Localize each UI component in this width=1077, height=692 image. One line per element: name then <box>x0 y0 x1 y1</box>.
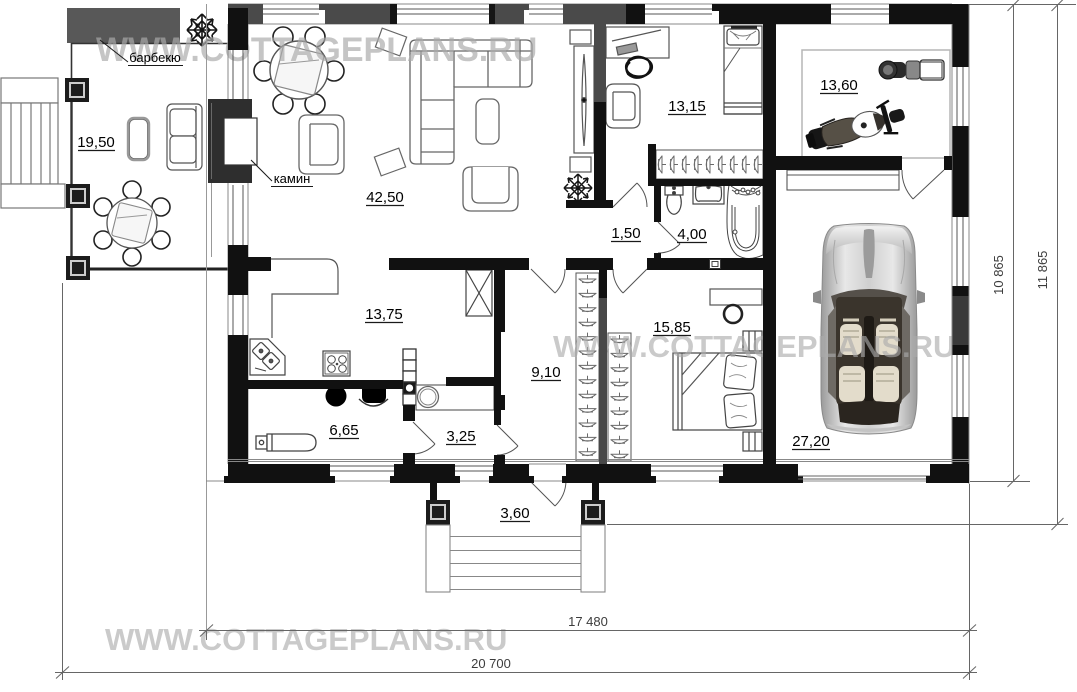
svg-text:WWW.COTTAGEPLANS.RU: WWW.COTTAGEPLANS.RU <box>553 329 955 364</box>
svg-text:20 700: 20 700 <box>471 656 511 671</box>
svg-text:13,75: 13,75 <box>365 306 403 323</box>
svg-text:4,00: 4,00 <box>677 226 706 243</box>
svg-text:3,25: 3,25 <box>446 428 475 445</box>
svg-text:WWW.COTTAGEPLANS.RU: WWW.COTTAGEPLANS.RU <box>105 622 507 657</box>
svg-text:13,15: 13,15 <box>668 98 706 115</box>
svg-text:17 480: 17 480 <box>568 614 608 629</box>
svg-text:9,10: 9,10 <box>531 364 560 381</box>
svg-text:15,85: 15,85 <box>653 319 691 336</box>
svg-text:камин: камин <box>274 171 311 186</box>
svg-text:3,60: 3,60 <box>500 505 529 522</box>
svg-text:6,65: 6,65 <box>329 422 358 439</box>
svg-text:11 865: 11 865 <box>1035 251 1050 290</box>
svg-text:42,50: 42,50 <box>366 189 404 206</box>
svg-text:барбекю: барбекю <box>129 50 181 65</box>
svg-text:10 865: 10 865 <box>991 255 1006 295</box>
svg-text:1,50: 1,50 <box>611 225 640 242</box>
svg-text:19,50: 19,50 <box>77 134 115 151</box>
svg-text:27,20: 27,20 <box>792 433 830 450</box>
svg-text:13,60: 13,60 <box>820 77 858 94</box>
